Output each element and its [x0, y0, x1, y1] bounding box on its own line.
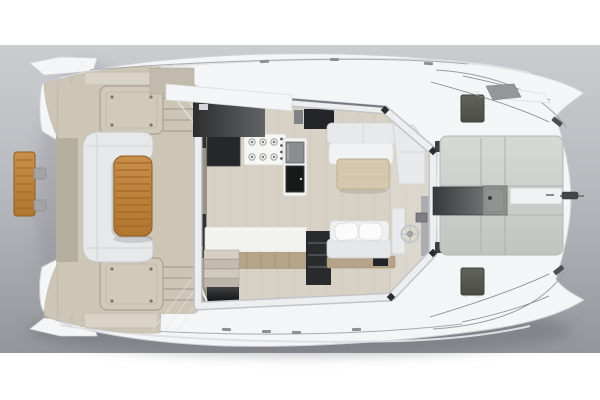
deck-locker-starboard: [100, 258, 163, 310]
salon-table: [337, 159, 389, 189]
helm-wheel: [402, 226, 419, 243]
anchor-locker-hatch: [483, 186, 507, 215]
gangway-clip-lower: [34, 200, 46, 211]
galley-microwave: [286, 142, 304, 163]
render-canvas: [0, 0, 600, 400]
transom-wall-shadow: [58, 138, 78, 262]
center-walkway: [433, 187, 483, 215]
bow-step-panel: [510, 188, 562, 204]
galley-counter: [205, 227, 307, 252]
helm-seat: [327, 221, 395, 268]
deck-hatch-port: [461, 95, 484, 122]
galley-stove: [244, 134, 286, 165]
salon: [166, 84, 437, 306]
helm-pillow-right: [359, 222, 383, 240]
cockpit-teak-table: [114, 156, 152, 236]
locker-end-panel: [294, 110, 303, 124]
anchor-locker-latch: [488, 196, 492, 200]
gangway-clip-upper: [34, 168, 46, 179]
helm-pillow-left: [334, 222, 358, 241]
helm-instrument: [416, 213, 427, 222]
oven-knob: [300, 178, 302, 180]
deck-hatch-starboard: [461, 268, 484, 295]
anchor-roller: [562, 192, 578, 199]
boat-render: [0, 0, 600, 400]
overhang-latch: [199, 104, 208, 110]
